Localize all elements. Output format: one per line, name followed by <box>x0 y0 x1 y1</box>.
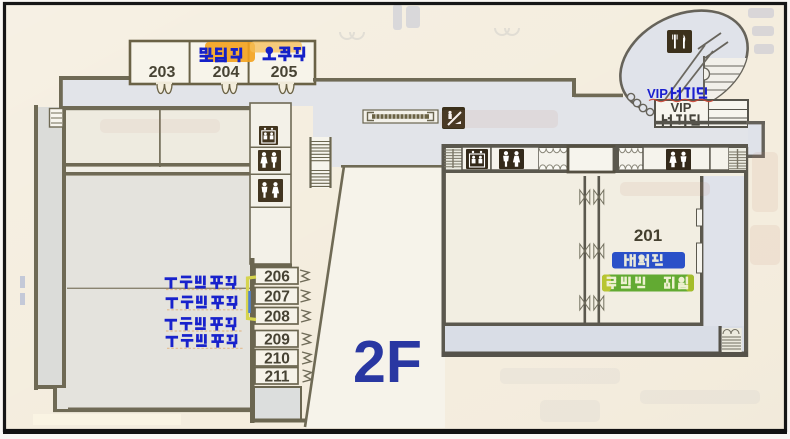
svg-text:2F: 2F <box>353 329 422 395</box>
svg-text:206: 206 <box>264 269 290 286</box>
svg-text:209: 209 <box>264 332 290 349</box>
svg-text:204: 204 <box>213 64 240 81</box>
svg-text:VIP: VIP <box>647 86 668 101</box>
svg-text:211: 211 <box>264 369 289 386</box>
svg-text:VIP: VIP <box>671 100 692 115</box>
svg-text:207: 207 <box>264 289 290 306</box>
svg-text:208: 208 <box>264 309 290 326</box>
svg-text:205: 205 <box>271 64 298 81</box>
svg-text:201: 201 <box>634 226 662 245</box>
svg-text:210: 210 <box>264 351 290 368</box>
svg-text:203: 203 <box>149 64 176 81</box>
